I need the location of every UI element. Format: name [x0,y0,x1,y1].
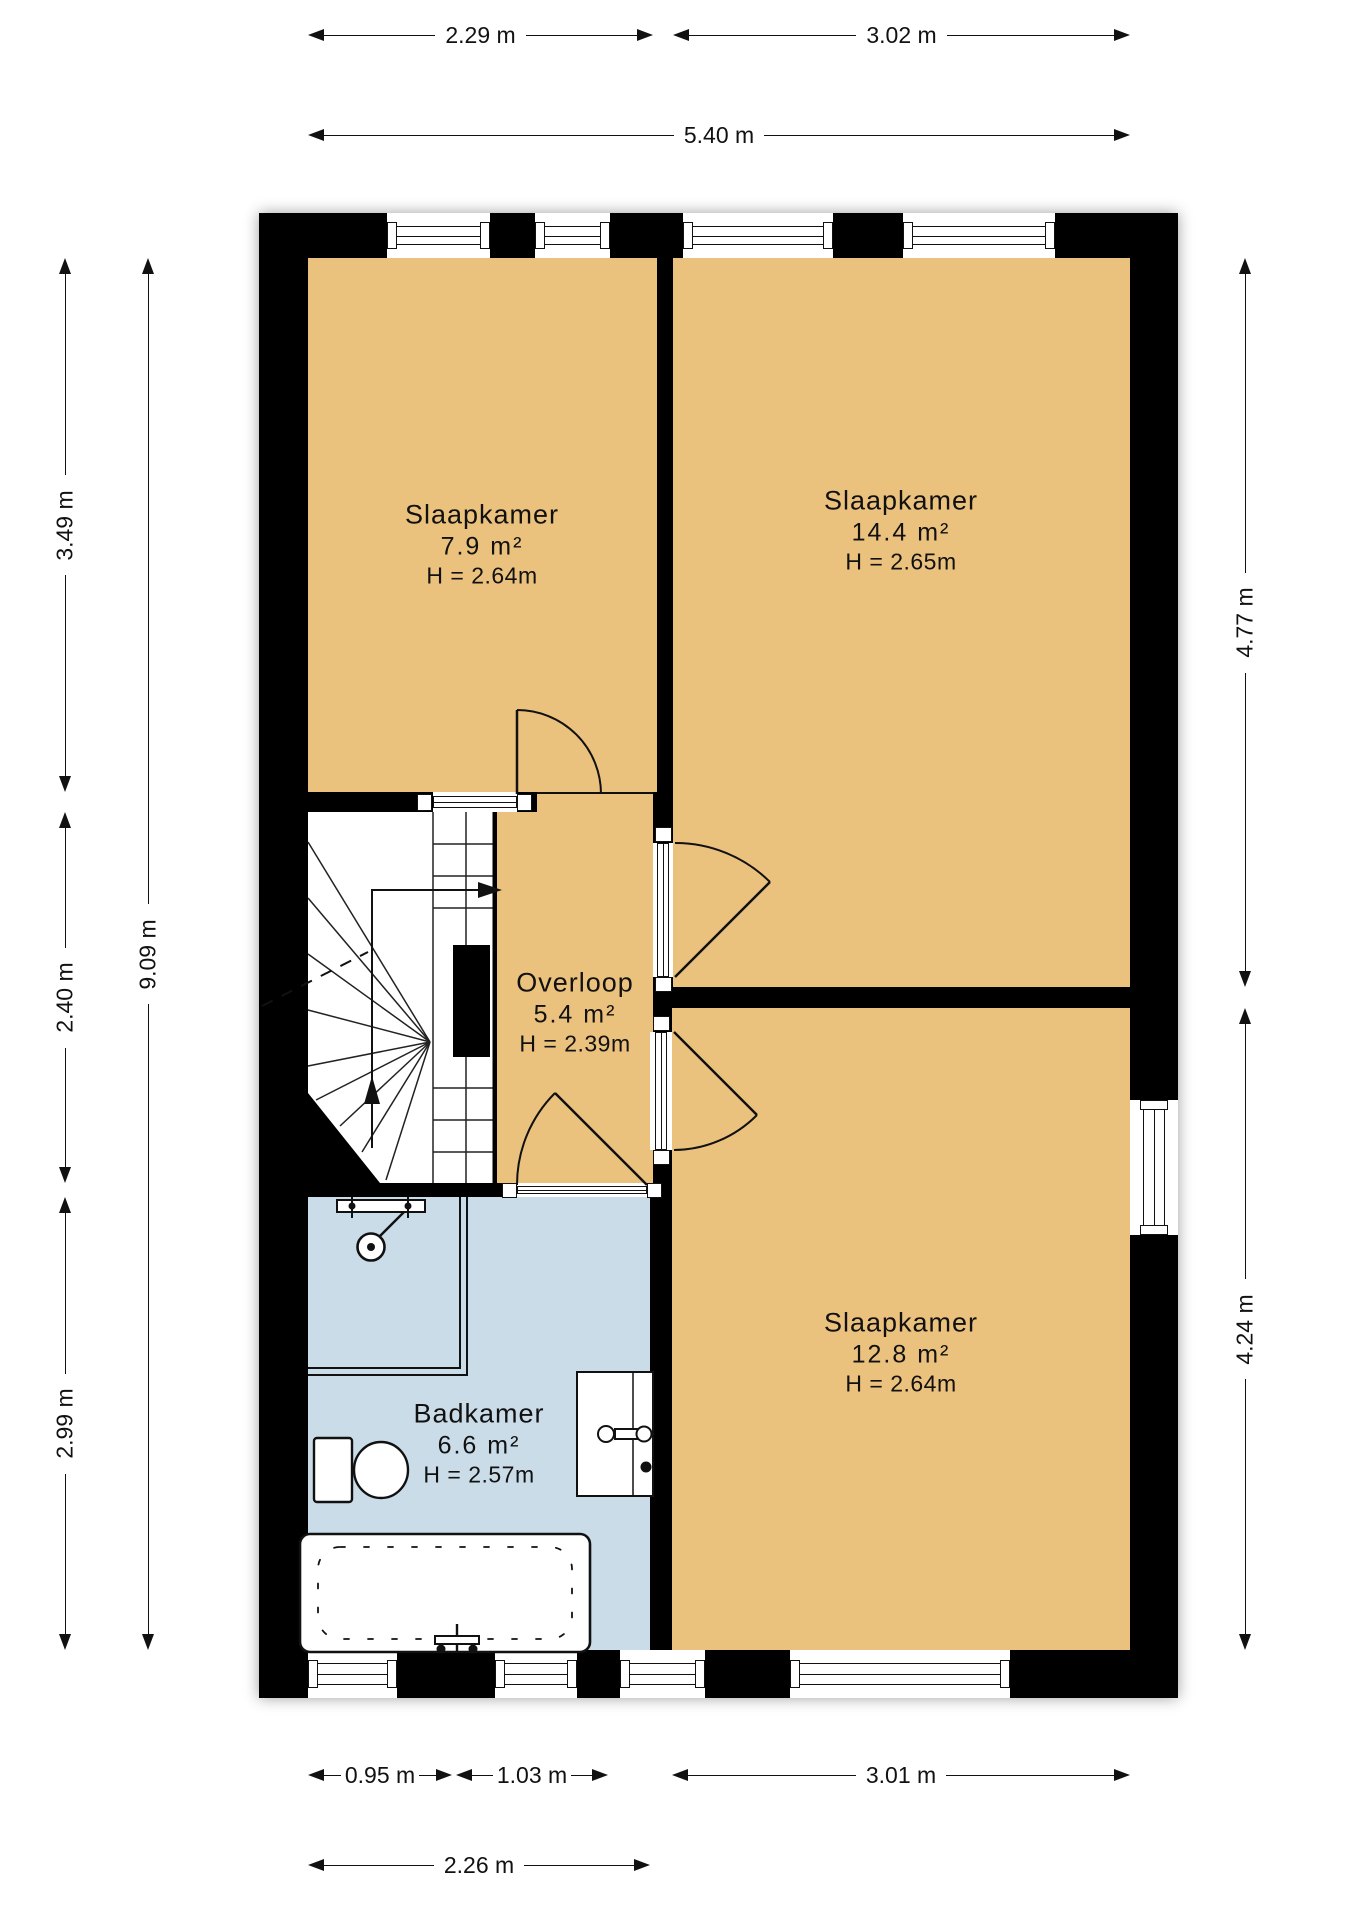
room-area: 6.6 m² [413,1430,544,1461]
dimension-value: 4.24 m [1232,1294,1259,1364]
arrow-right-icon [1114,129,1130,141]
door-threshold-slaapkamer-2 [653,843,673,977]
dimension-top-total: 5.40 m [308,122,1130,148]
room-label-overloop: Overloop 5.4 m² H = 2.39m [516,966,634,1057]
floor-plan [259,213,1178,1698]
room-height: H = 2.57m [413,1461,544,1489]
room-label-slaapkamer-3: Slaapkamer 12.8 m² H = 2.64m [824,1306,978,1397]
door-jamb [517,794,532,811]
dimension-left-3: 2.99 m [52,1197,78,1650]
dimension-bottom-3: 3.01 m [672,1762,1130,1788]
dimension-right-1: 4.77 m [1232,258,1258,987]
door-jamb [655,977,672,992]
arrow-right-icon [592,1769,608,1781]
door-jamb [653,1150,670,1165]
room-label-badkamer: Badkamer 6.6 m² H = 2.57m [413,1397,544,1488]
window [790,1650,1010,1698]
room-height: H = 2.39m [516,1030,634,1058]
window [903,213,1055,258]
room-slaapkamer-2-floor [673,258,1130,987]
room-name: Slaapkamer [405,498,559,531]
arrow-left-icon [308,1769,324,1781]
room-label-slaapkamer-1: Slaapkamer 7.9 m² H = 2.64m [405,498,559,589]
arrow-right-icon [637,29,653,41]
dimension-value: 2.26 m [434,1852,524,1879]
room-label-slaapkamer-2: Slaapkamer 14.4 m² H = 2.65m [824,484,978,575]
arrow-left-icon [456,1769,472,1781]
arrow-down-icon [59,1634,71,1650]
arrow-down-icon [59,776,71,792]
dimension-value: 2.40 m [52,962,79,1032]
door-jamb [647,1183,662,1198]
door-threshold-badkamer [517,1183,647,1197]
arrow-right-icon [436,1769,452,1781]
room-height: H = 2.64m [405,562,559,590]
arrow-down-icon [1239,971,1251,987]
arrow-up-icon [1239,1008,1251,1024]
window [1130,1100,1178,1235]
stairs-floor [308,812,494,1183]
dimension-bottom-total: 2.26 m [308,1852,650,1878]
dimension-value: 5.40 m [674,122,764,149]
arrow-down-icon [59,1167,71,1183]
dimension-bottom-2: 1.03 m [456,1762,608,1788]
arrow-left-icon [308,129,324,141]
arrow-right-icon [1114,1769,1130,1781]
dimension-value: 0.95 m [341,1762,419,1789]
room-area: 12.8 m² [824,1339,978,1370]
dimension-right-2: 4.24 m [1232,1008,1258,1650]
dimension-left-total: 9.09 m [135,258,161,1650]
arrow-up-icon [59,258,71,274]
dimension-left-1: 3.49 m [52,258,78,792]
arrow-right-icon [1114,29,1130,41]
window [308,1650,397,1698]
window [683,213,833,258]
dimension-top-1: 2.29 m [308,22,653,48]
dimension-value: 3.01 m [856,1762,946,1789]
door-threshold-slaapkamer-3 [650,1032,672,1150]
dimension-top-2: 3.02 m [673,22,1130,48]
arrow-right-icon [634,1859,650,1871]
arrow-left-icon [308,1859,324,1871]
arrow-up-icon [59,1197,71,1213]
door-jamb [417,794,432,811]
room-area: 7.9 m² [405,531,559,562]
arrow-up-icon [1239,258,1251,274]
arrow-left-icon [673,29,689,41]
arrow-left-icon [308,29,324,41]
window [495,1650,577,1698]
door-jamb [502,1183,517,1198]
room-height: H = 2.65m [824,548,978,576]
window [620,1650,705,1698]
dimension-value: 9.09 m [135,919,162,989]
room-name: Overloop [516,966,634,999]
door-jamb [655,827,672,842]
dimension-value: 4.77 m [1232,587,1259,657]
arrow-up-icon [59,812,71,828]
door-jamb [653,1016,670,1031]
dimension-value: 3.02 m [856,22,946,49]
room-name: Slaapkamer [824,484,978,517]
room-overloop-floor-top [537,792,653,812]
arrow-down-icon [142,1634,154,1650]
dimension-value: 3.49 m [52,490,79,560]
arrow-up-icon [142,258,154,274]
room-height: H = 2.64m [824,1370,978,1398]
room-area: 14.4 m² [824,517,978,548]
room-area: 5.4 m² [516,999,634,1030]
window [387,213,490,258]
dimension-value: 2.99 m [52,1388,79,1458]
window [535,213,610,258]
room-name: Badkamer [413,1397,544,1430]
arrow-down-icon [1239,1634,1251,1650]
dimension-left-2: 2.40 m [52,812,78,1183]
floor-plan-page: Slaapkamer 7.9 m² H = 2.64m Slaapkamer 1… [0,0,1358,1920]
dimension-bottom-1: 0.95 m [308,1762,452,1788]
dimension-value: 2.29 m [435,22,525,49]
dimension-value: 1.03 m [493,1762,571,1789]
arrow-left-icon [672,1769,688,1781]
room-name: Slaapkamer [824,1306,978,1339]
door-threshold-slaapkamer-1 [433,792,517,812]
